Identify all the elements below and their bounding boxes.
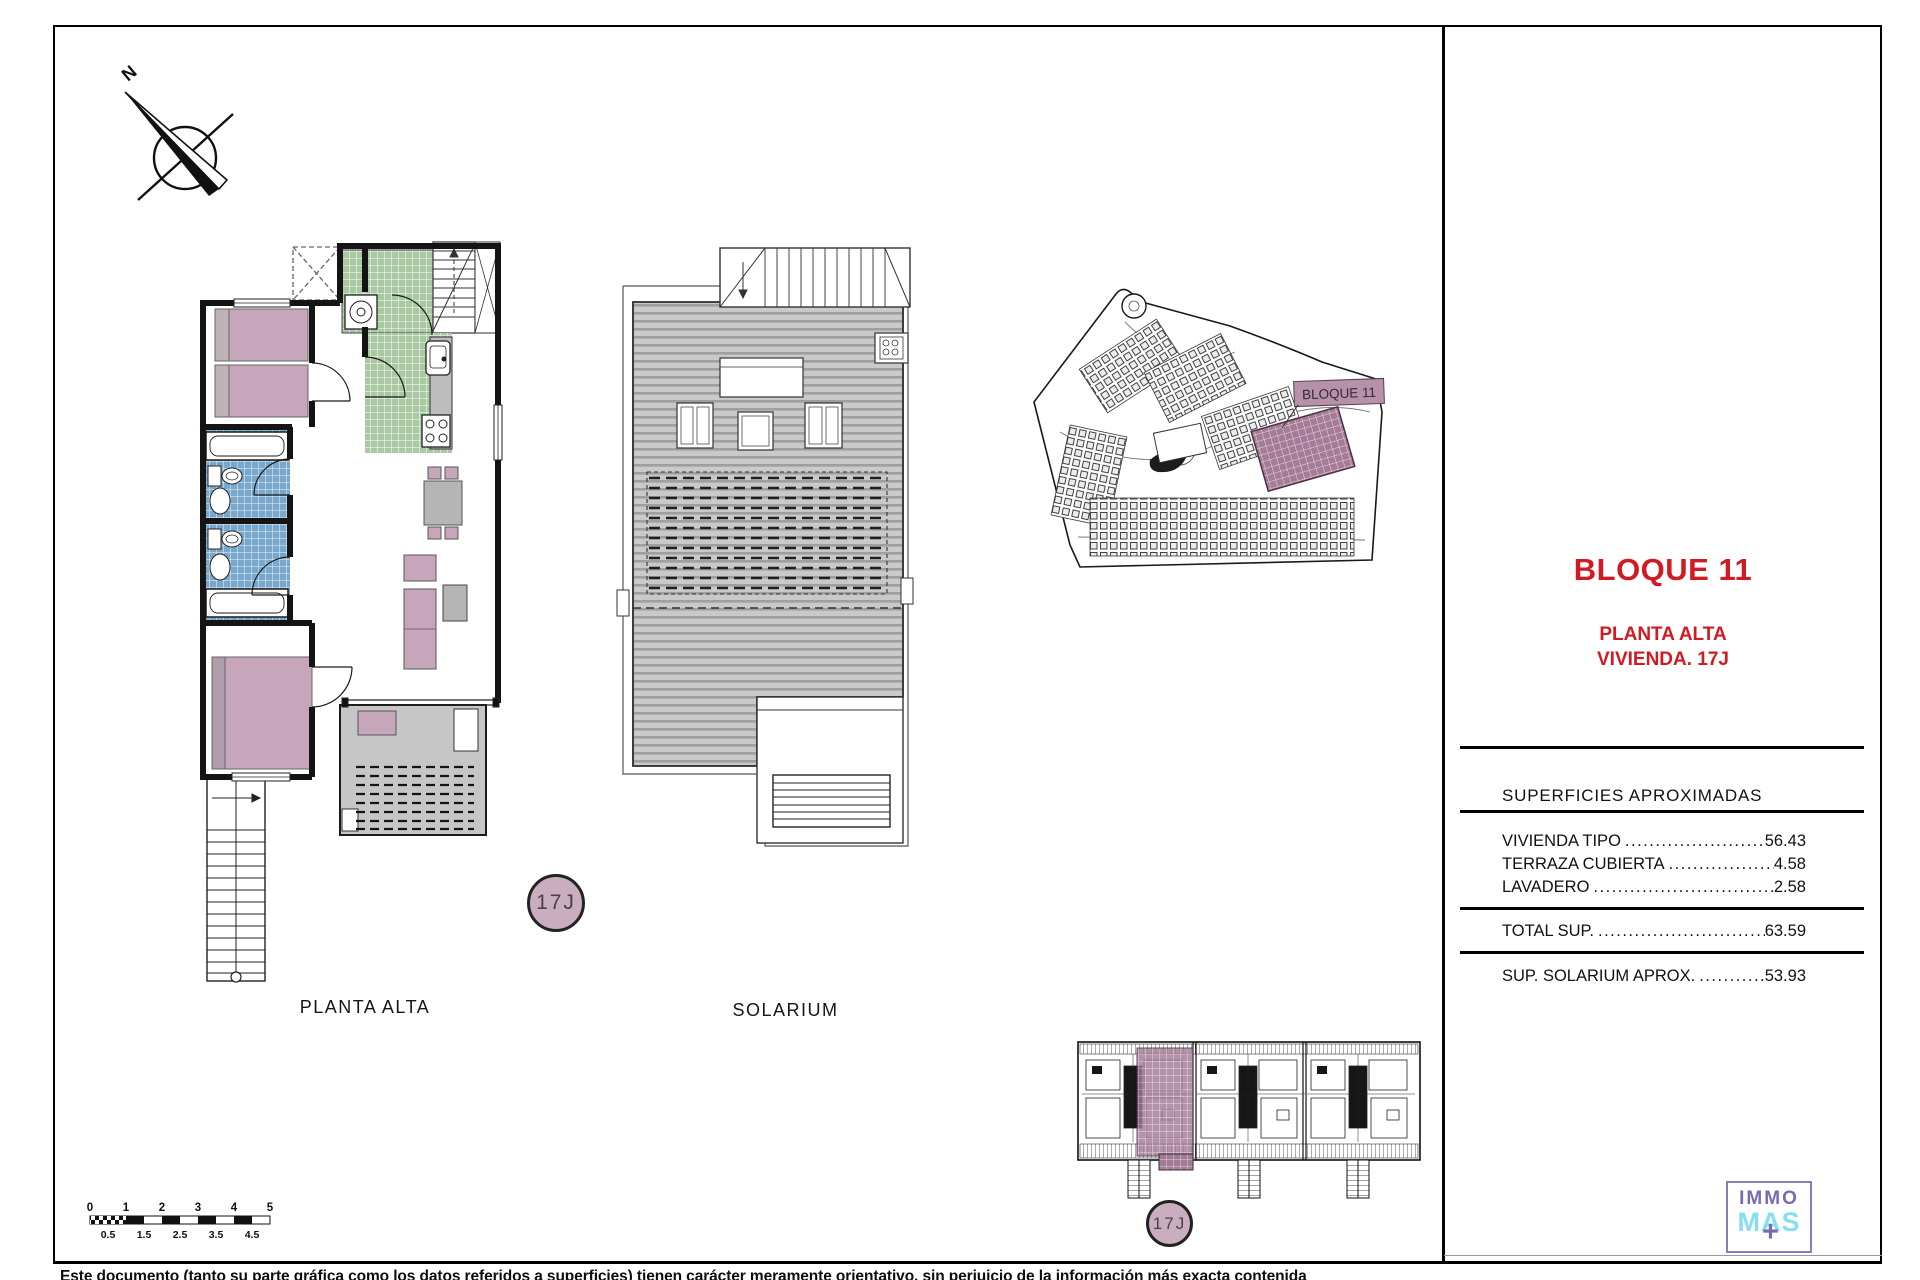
solarium-plan [615, 240, 935, 865]
highlighted-unit-terrace [1159, 1154, 1193, 1170]
north-compass-icon: N [88, 50, 248, 215]
svg-text:5: 5 [267, 1202, 274, 1214]
bathtub-1 [206, 432, 288, 460]
dashed-void [293, 247, 340, 300]
bed-1 [215, 309, 308, 417]
svg-text:4: 4 [231, 1202, 238, 1214]
bathtub-2 [206, 589, 288, 617]
row-value: 2.58 [1774, 878, 1806, 897]
sink-2 [210, 554, 230, 580]
table-row-total: TOTAL SUP. .............................… [1502, 922, 1806, 944]
svg-text:2.5: 2.5 [173, 1229, 188, 1241]
terrace [340, 705, 486, 835]
row-value: 4.58 [1774, 855, 1806, 874]
compass-north-letter: N [118, 61, 141, 85]
dining-set [424, 467, 462, 539]
exterior-staircase [207, 779, 265, 982]
planta-alta-label: PLANTA ALTA [270, 997, 460, 1018]
immo-mas-logo: IMMO MAS + [1726, 1181, 1812, 1253]
scale-numbers-top: 0 1 2 3 4 5 [87, 1202, 274, 1214]
svg-text:3: 3 [195, 1202, 201, 1214]
pillar-left [617, 590, 629, 616]
svg-text:1: 1 [123, 1202, 130, 1214]
scale-bar: 0 1 2 3 4 5 0.5 1.5 2.5 3.5 4.5 [83, 1196, 308, 1246]
panel-subtitle-1: PLANTA ALTA [1442, 624, 1884, 646]
roof-stairwell [720, 248, 910, 307]
table-rule-bottom [1460, 951, 1864, 954]
row-label: SUP. SOLARIUM APROX. [1502, 967, 1695, 986]
table-row-lavadero: LAVADERO ...............................… [1502, 878, 1806, 900]
highlighted-unit-17j [1137, 1048, 1193, 1156]
row-leader: ........................................… [1589, 878, 1773, 897]
scale-numbers-bottom: 0.5 1.5 2.5 3.5 4.5 [101, 1229, 260, 1241]
row-value: 63.59 [1765, 922, 1806, 941]
table-rule-header [1460, 810, 1864, 813]
row-label: LAVADERO [1502, 878, 1589, 897]
unit-badge-plan: 17J [527, 874, 585, 932]
floor-plan-planta-alta [160, 195, 510, 1035]
table-rule-mid [1460, 907, 1864, 910]
barbecue [875, 333, 908, 363]
table-rule-top [1460, 746, 1864, 749]
logo-plus-icon: + [1762, 1216, 1779, 1249]
block-label: BLOQUE 11 [1294, 378, 1385, 406]
bed-2 [212, 657, 312, 769]
svg-text:1.5: 1.5 [137, 1229, 152, 1241]
table-row-vivienda: VIVIENDA TIPO ..........................… [1502, 832, 1806, 854]
pillar-right [901, 578, 913, 604]
row-leader: ........................................… [1695, 967, 1765, 986]
row-leader: ........................................… [1621, 832, 1765, 851]
washing-machine [345, 295, 377, 329]
footer-disclaimer: Este documento (tanto su parte gráfica c… [60, 1268, 1900, 1280]
row-label: VIVIENDA TIPO [1502, 832, 1621, 851]
site-plan: BLOQUE 11 [1030, 282, 1445, 597]
sofa-set [404, 555, 467, 669]
sink-1 [210, 488, 230, 514]
row-label: TERRAZA CUBIERTA [1502, 855, 1665, 874]
row-value: 56.43 [1765, 832, 1806, 851]
unit-badge-elevation: 17J [1146, 1200, 1193, 1247]
row-value: 53.93 [1765, 967, 1806, 986]
kitchen-sink [426, 341, 450, 375]
svg-text:2: 2 [159, 1202, 165, 1214]
panel-subtitle-2: VIVIENDA. 17J [1442, 649, 1884, 671]
svg-text:0.5: 0.5 [101, 1229, 116, 1241]
svg-text:0: 0 [87, 1202, 93, 1214]
stove [422, 415, 450, 447]
row-leader: ........................................… [1665, 855, 1774, 874]
table-header: SUPERFICIES APROXIMADAS [1502, 786, 1762, 806]
row-label: TOTAL SUP. [1502, 922, 1594, 941]
block-label-text: BLOQUE 11 [1302, 385, 1377, 403]
stairwell [433, 242, 500, 333]
logo-line-immo: IMMO [1728, 1189, 1810, 1208]
block-key-plan [1075, 1040, 1425, 1255]
plan-sheet: N [0, 0, 1920, 1280]
panel-title: BLOQUE 11 [1442, 552, 1884, 588]
svg-text:3.5: 3.5 [209, 1229, 224, 1241]
lower-roof-section [757, 697, 903, 843]
panel-footer-line [1444, 1255, 1882, 1256]
svg-text:4.5: 4.5 [245, 1229, 260, 1241]
table-row-solarium: SUP. SOLARIUM APROX. ...................… [1502, 967, 1806, 989]
solarium-label: SOLARIUM [688, 1000, 883, 1021]
table-row-terraza: TERRAZA CUBIERTA .......................… [1502, 855, 1806, 877]
row-leader: ........................................… [1594, 922, 1765, 941]
